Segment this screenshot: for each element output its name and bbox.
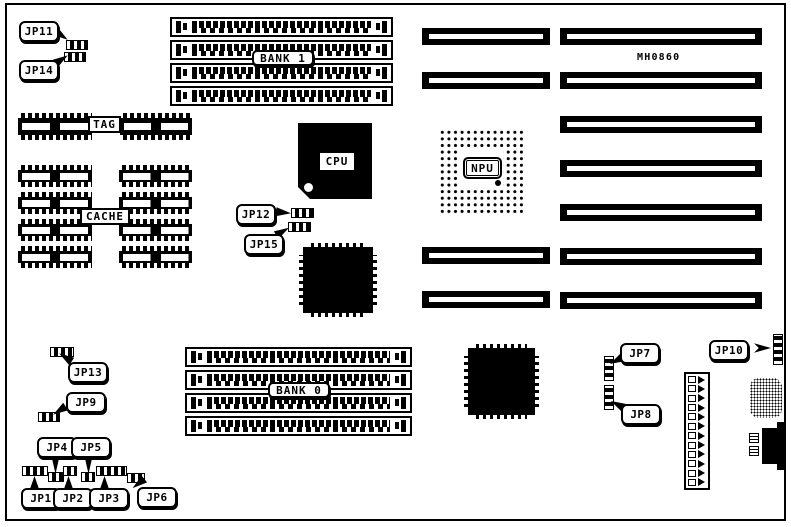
qfp-chip-1-pins-right (373, 255, 377, 305)
npu-label: NPU (463, 157, 502, 179)
keyboard-fuse-component (750, 378, 782, 418)
isa-long-slots (560, 28, 762, 309)
simm-slot (170, 17, 393, 37)
simm-slot (185, 416, 412, 436)
tag-label: TAG (88, 116, 121, 133)
dip (18, 246, 92, 268)
prow (688, 460, 706, 467)
jp2-jumper (63, 466, 77, 476)
jp5-jumper (81, 472, 95, 482)
simm-slot (170, 86, 393, 106)
isa-short-slots-top (422, 28, 550, 89)
isa-slot (560, 204, 762, 221)
prow (688, 442, 706, 449)
jp14-callout: JP14 (19, 60, 59, 81)
jp11-jumper (66, 40, 88, 50)
jp7-jumper (604, 356, 614, 381)
prow (688, 432, 706, 439)
npu-pin1-dot (495, 180, 501, 186)
power-connector (684, 372, 710, 490)
motherboard-layout-diagram: BANK 1 BANK 0 MH0860 TAG CACHE CPU NPU (0, 0, 791, 527)
qfp-chip-2-pins-left (464, 356, 468, 407)
jp15-jumper (288, 222, 311, 232)
qfp-chip-1 (303, 247, 373, 313)
isa-slot (560, 292, 762, 309)
isa-slot (422, 247, 550, 264)
cpu-pin1-dot (304, 183, 313, 192)
prow (688, 470, 706, 477)
isa-slot (560, 160, 762, 177)
jp15-callout: JP15 (244, 234, 284, 255)
simm-slot (185, 347, 412, 367)
jp2-callout: JP2 (53, 488, 93, 509)
keyboard-connector-lead-2 (749, 446, 759, 456)
prow (688, 376, 706, 383)
isa-slot (560, 72, 762, 89)
dip (120, 113, 192, 140)
jp11-callout: JP11 (19, 21, 59, 42)
jp12-jumper (291, 208, 314, 218)
jp4-jumper (48, 472, 64, 482)
jp6-callout: JP6 (137, 487, 177, 508)
isa-slot (422, 291, 550, 308)
isa-slot (560, 248, 762, 265)
isa-slot (560, 116, 762, 133)
prow (688, 385, 706, 392)
qfp-chip-2-pins-right (535, 356, 539, 407)
dip (119, 246, 192, 268)
simm-slot (170, 63, 393, 83)
jp12-callout: JP12 (236, 204, 276, 225)
jp10-jumper (773, 334, 783, 365)
board-part-number: MH0860 (637, 52, 680, 63)
keyboard-connector-flange (777, 422, 786, 470)
isa-short-slots-bottom (422, 247, 550, 308)
prow (688, 395, 706, 402)
prow (688, 423, 706, 430)
jp14-jumper (64, 52, 86, 62)
qfp-chip-2 (468, 348, 535, 415)
isa-slot (422, 28, 550, 45)
prow (688, 404, 706, 411)
jp5-callout: JP5 (71, 437, 111, 458)
dip (119, 165, 192, 187)
bank0-label: BANK 0 (268, 382, 330, 398)
prow (688, 479, 706, 486)
dip (18, 113, 92, 140)
prow (688, 413, 706, 420)
jp13-callout: JP13 (68, 362, 108, 383)
jp3-callout: JP3 (89, 488, 129, 509)
jp9-callout: JP9 (66, 392, 106, 413)
jp8-callout: JP8 (621, 404, 661, 425)
cache-label: CACHE (80, 208, 130, 225)
isa-slot (422, 72, 550, 89)
qfp-chip-1-pins-left (299, 255, 303, 305)
prow (688, 451, 706, 458)
isa-slot (560, 28, 762, 45)
jp10-callout: JP10 (709, 340, 749, 361)
cpu-label: CPU (320, 153, 354, 170)
jp7-callout: JP7 (620, 343, 660, 364)
jp1-jumper (22, 466, 48, 476)
jp8-jumper (604, 385, 614, 410)
keyboard-connector-lead-1 (749, 433, 759, 443)
bank1-label: BANK 1 (252, 50, 314, 66)
jp3-jumper (96, 466, 127, 476)
dip (18, 165, 92, 187)
